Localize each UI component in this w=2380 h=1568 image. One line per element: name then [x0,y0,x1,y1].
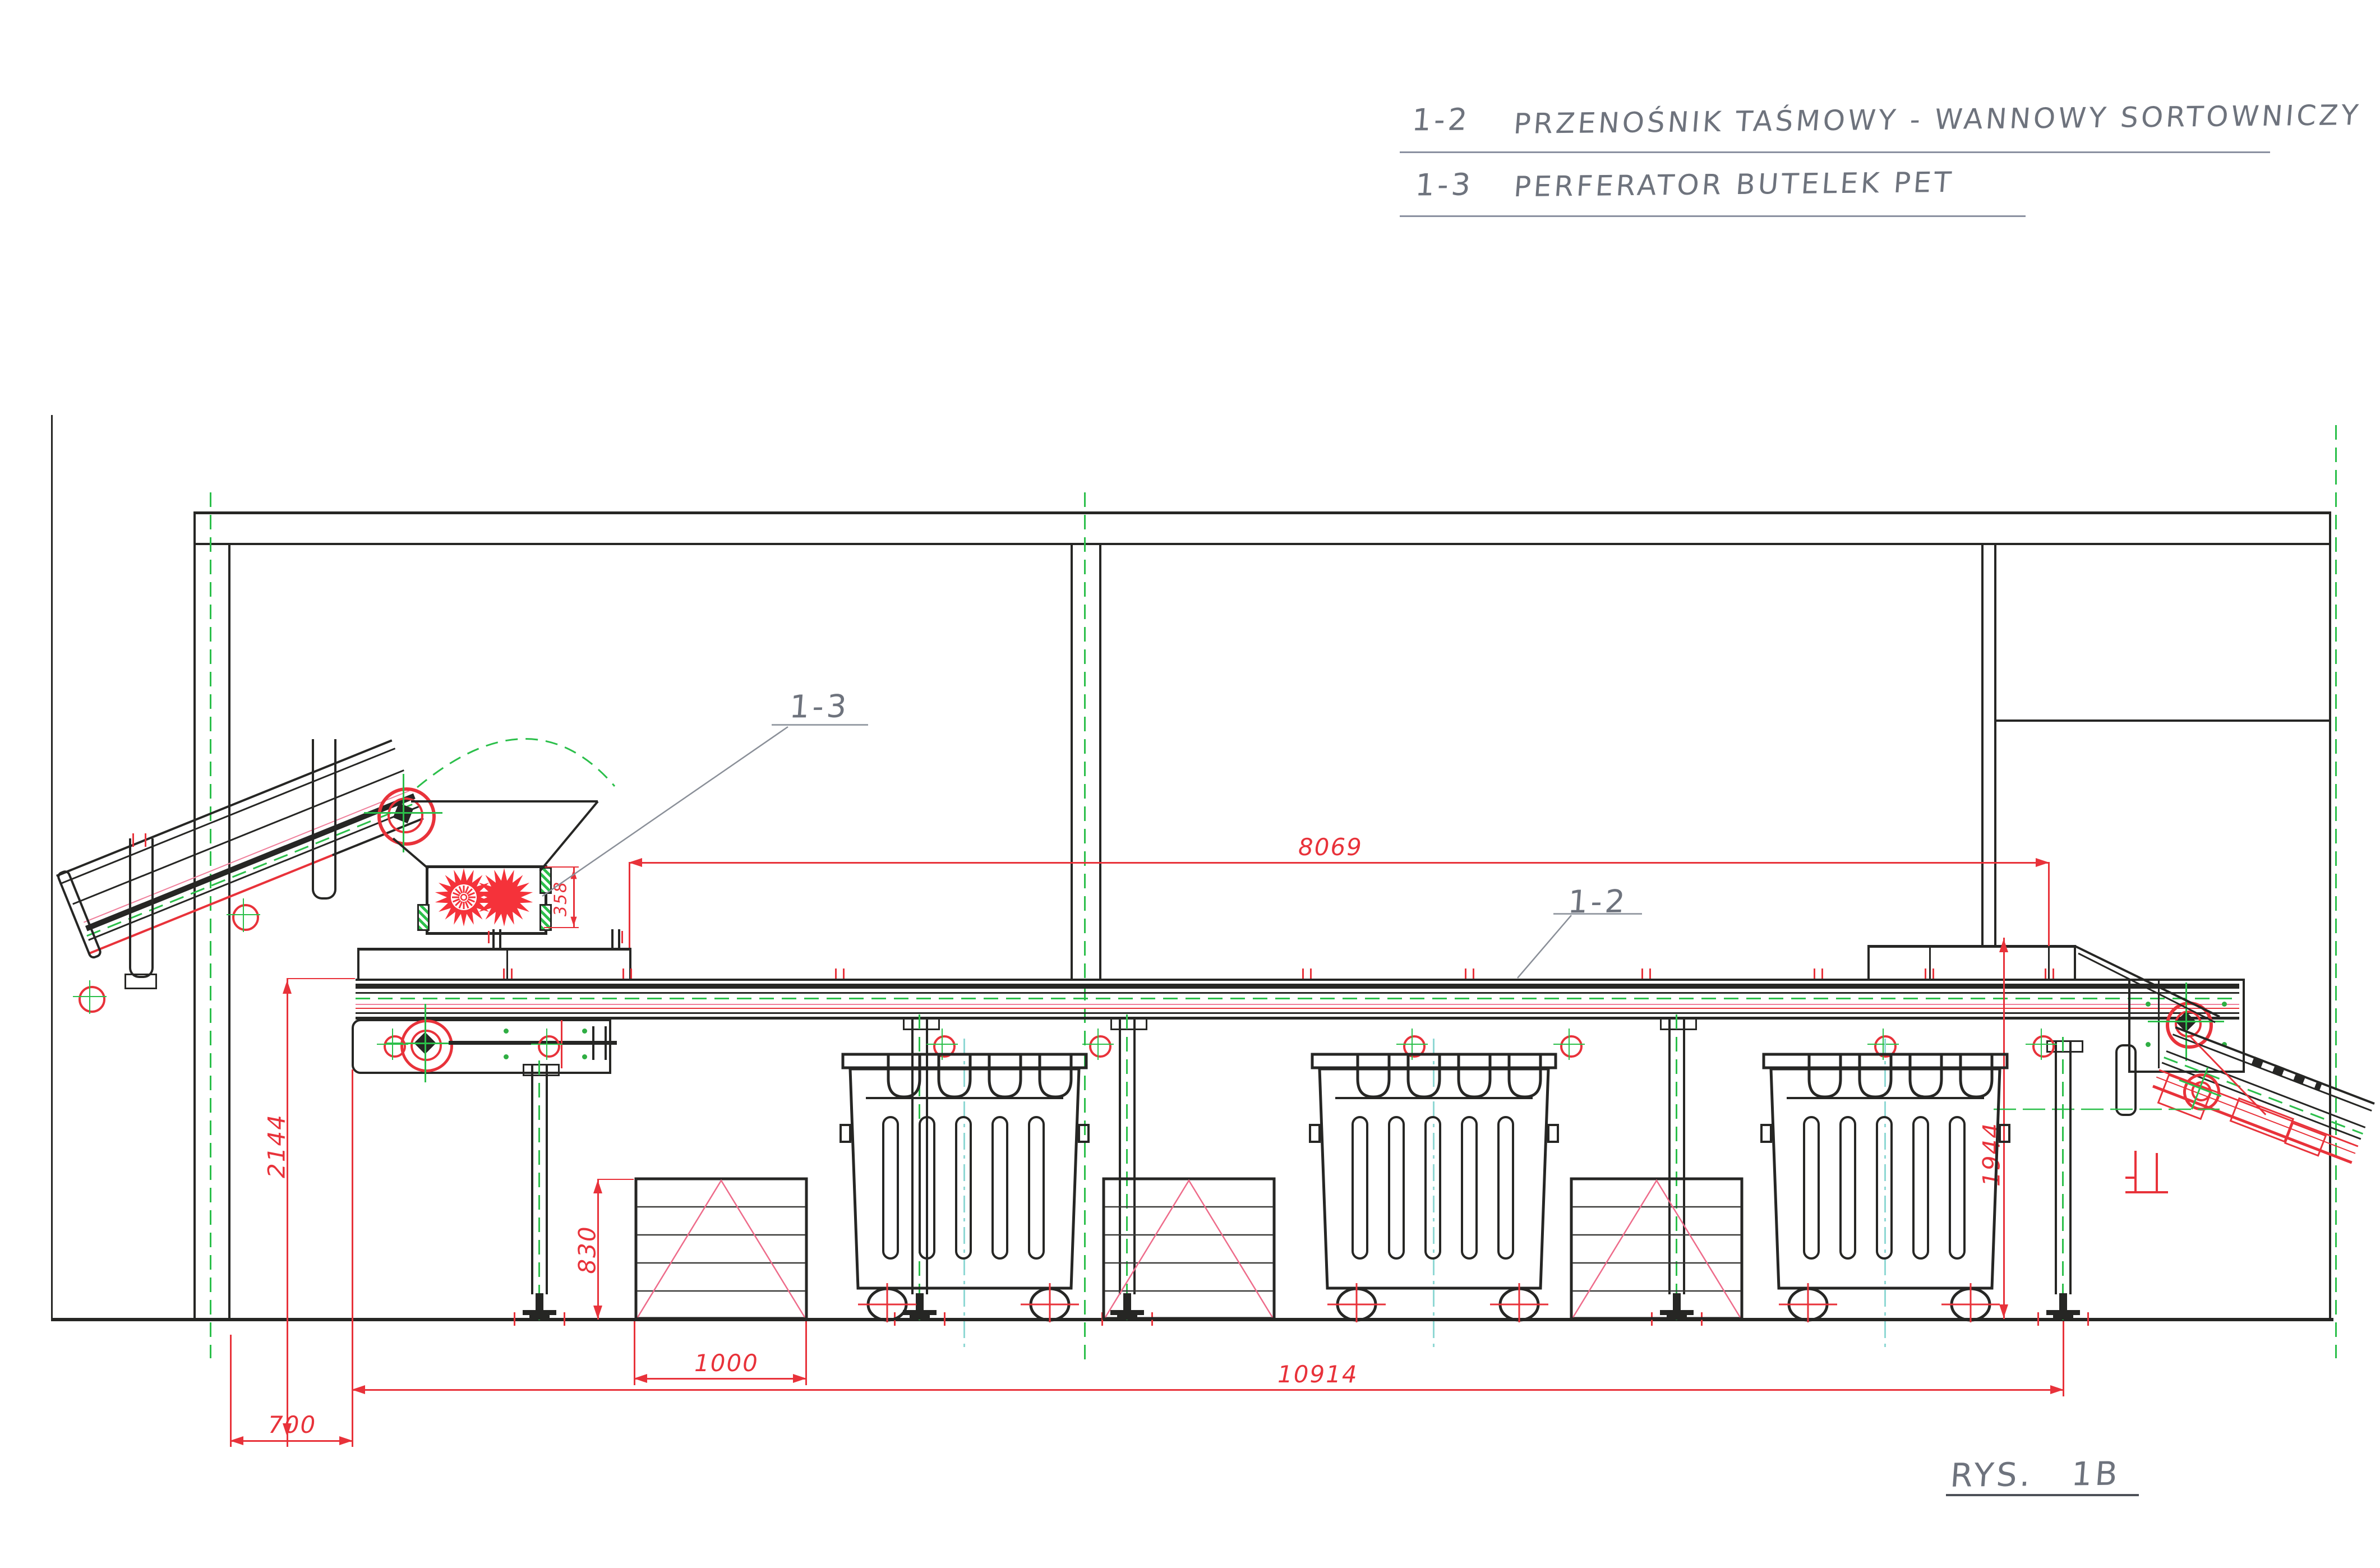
discharge-bracket [2125,1151,2168,1193]
technical-drawing-canvas: 1-2 PRZENOŚNIK TAŚMOWY - WANNOWY SORTOWN… [0,0,2380,1568]
trajectory-arc [417,739,615,787]
wall-slope [2075,946,2220,1017]
funnel-wall [393,838,428,869]
leader-line [1518,915,1571,978]
bale-box [1103,1178,1275,1320]
bale-box [1570,1178,1743,1320]
wall-slope [2078,953,2215,1022]
funnel-wall [540,801,598,871]
bale-box [635,1178,808,1320]
waste-container [1311,1052,1557,1322]
waste-container [841,1052,1088,1322]
waste-container [1762,1052,2009,1322]
leader-line [542,727,788,896]
overlay-lines [0,0,2380,1568]
